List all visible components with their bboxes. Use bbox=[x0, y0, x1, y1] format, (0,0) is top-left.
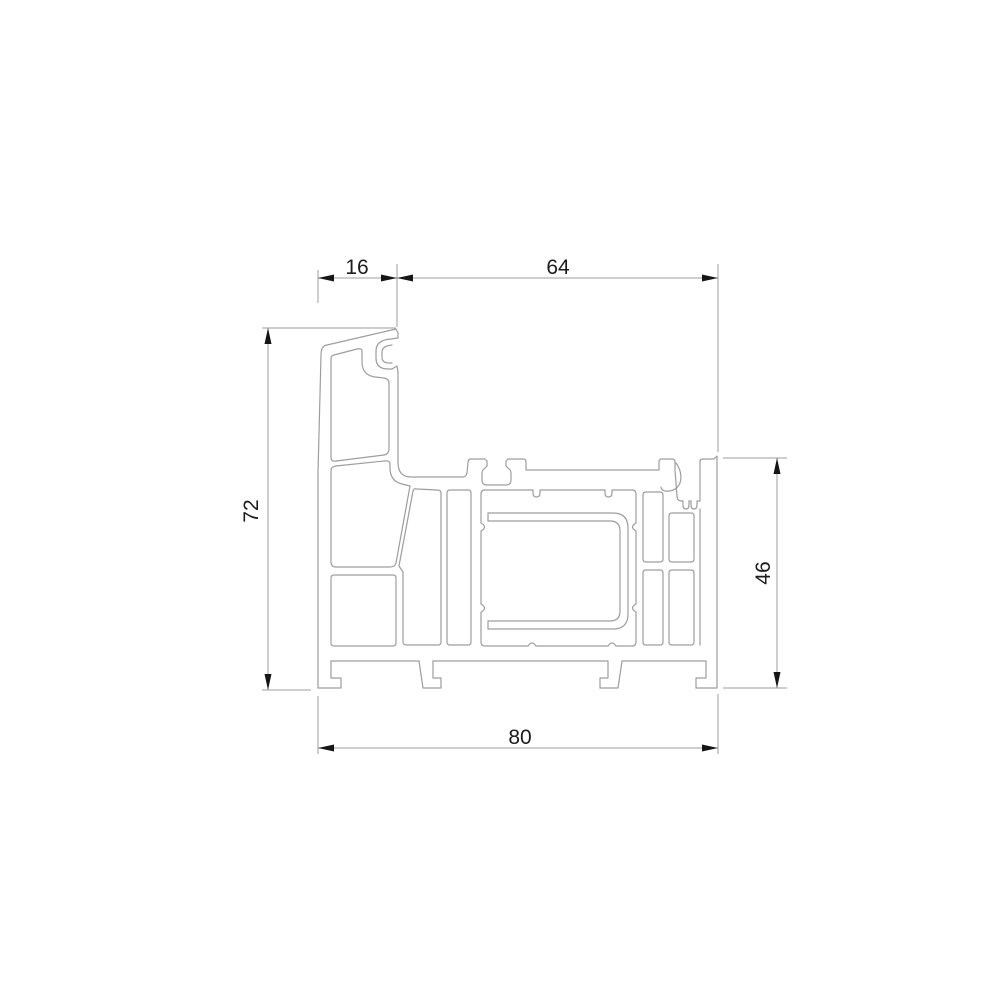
profile-section bbox=[318, 329, 717, 688]
arrowhead-up-icon bbox=[774, 458, 781, 474]
arrowhead-down-icon bbox=[265, 674, 272, 690]
arrowhead-right-icon bbox=[702, 275, 718, 282]
dim-label-72: 72 bbox=[240, 499, 263, 522]
chamber-narrow-mid bbox=[447, 490, 471, 645]
dimensioning: 16 64 72 46 bbox=[240, 256, 787, 754]
dimension-72: 72 bbox=[240, 328, 272, 690]
dim-label-80: 80 bbox=[508, 726, 531, 749]
drawing-canvas: 16 64 72 46 bbox=[0, 0, 1000, 1000]
arrowhead-up-icon bbox=[265, 328, 272, 344]
gasket-hook-curl bbox=[661, 463, 681, 491]
dimension-80: 80 bbox=[318, 726, 718, 752]
chamber-right-bottom-right bbox=[669, 570, 694, 645]
dimension-16: 16 bbox=[318, 256, 397, 282]
dimension-64: 64 bbox=[397, 256, 718, 282]
chamber-right-top-right bbox=[669, 513, 694, 562]
technical-drawing: 16 64 72 46 bbox=[0, 0, 1000, 1000]
profile-outer-contour bbox=[318, 329, 717, 688]
chamber-right-top-left bbox=[643, 492, 663, 562]
chamber-right-bottom-left bbox=[643, 570, 663, 645]
arrowhead-right-icon bbox=[702, 745, 718, 752]
dim-label-16: 16 bbox=[345, 256, 368, 279]
dim-label-46: 46 bbox=[752, 561, 775, 584]
steel-channel bbox=[488, 513, 628, 629]
dim-label-64: 64 bbox=[546, 256, 570, 279]
arrowhead-left-icon bbox=[397, 275, 413, 282]
dimension-46: 46 bbox=[752, 458, 781, 688]
chamber-upstand-top bbox=[331, 349, 389, 461]
chamber-upstand-middle bbox=[331, 461, 410, 567]
arrowhead-down-icon bbox=[774, 672, 781, 688]
chamber-upstand-bottom bbox=[331, 575, 396, 646]
arrowhead-left-icon bbox=[318, 745, 334, 752]
upstand-hook-inner-line bbox=[382, 345, 392, 363]
arrowhead-right-icon bbox=[381, 275, 397, 282]
arrowhead-left-icon bbox=[318, 275, 334, 282]
